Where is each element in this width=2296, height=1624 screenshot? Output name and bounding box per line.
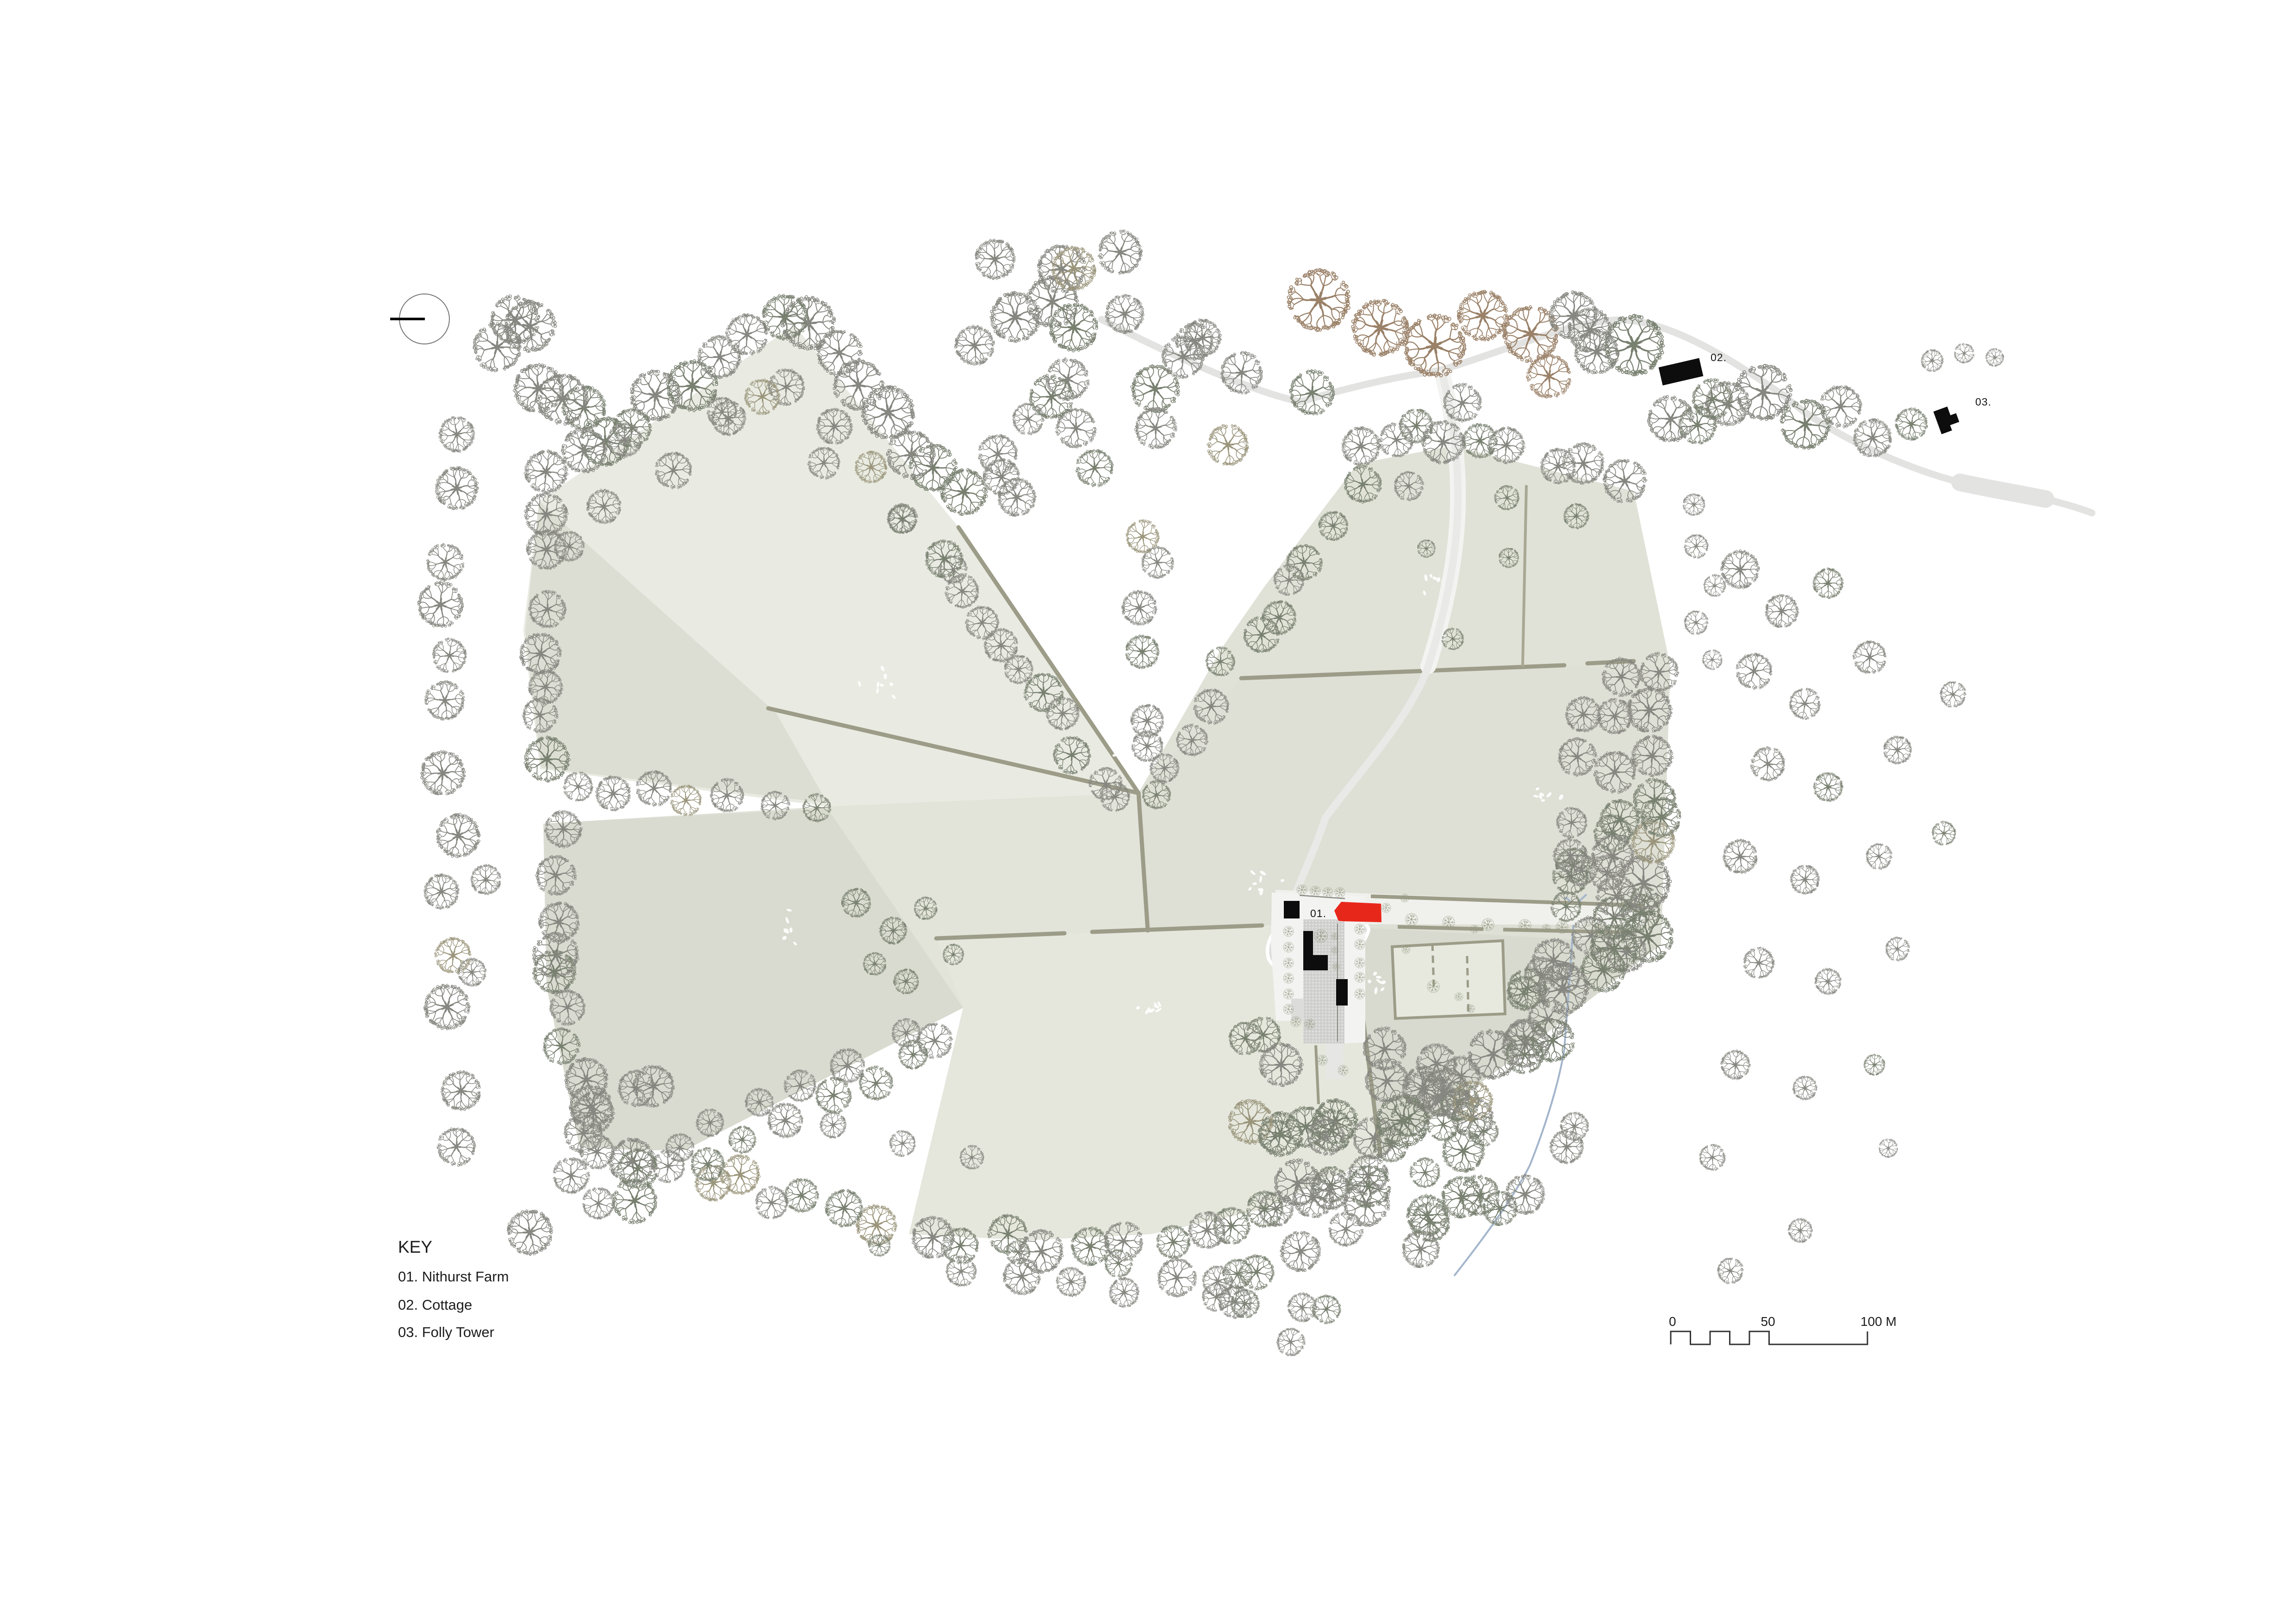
svg-text:03.: 03.: [1975, 396, 1991, 408]
svg-text:02. Cottage: 02. Cottage: [398, 1297, 472, 1313]
svg-text:01. Nithurst Farm: 01. Nithurst Farm: [398, 1268, 509, 1285]
svg-text:50: 50: [1761, 1314, 1775, 1329]
svg-text:KEY: KEY: [398, 1237, 432, 1256]
svg-text:0: 0: [1669, 1314, 1676, 1329]
svg-text:03. Folly Tower: 03. Folly Tower: [398, 1324, 494, 1340]
svg-text:100 M: 100 M: [1860, 1314, 1897, 1329]
svg-text:02.: 02.: [1711, 351, 1727, 363]
svg-text:01.: 01.: [1310, 907, 1326, 919]
